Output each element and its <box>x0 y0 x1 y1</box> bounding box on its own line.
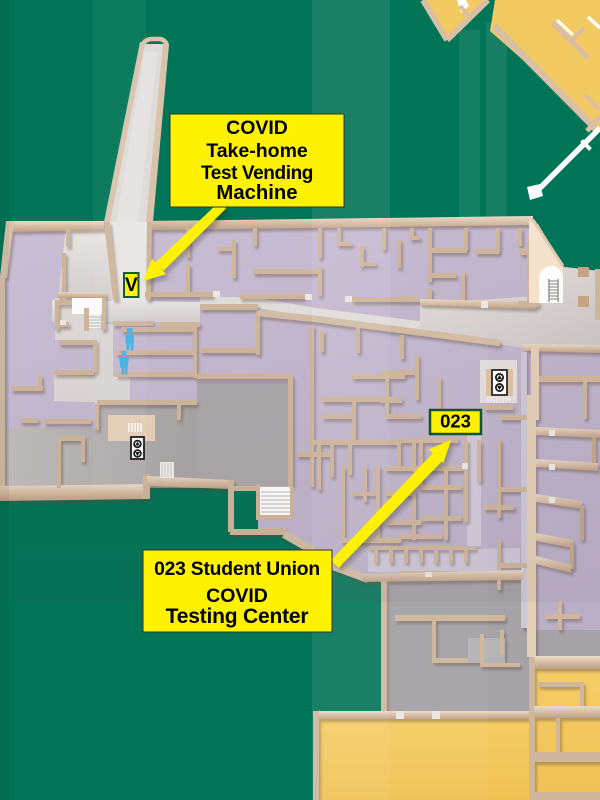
svg-text:Machine: Machine <box>216 182 297 204</box>
svg-text:023: 023 <box>440 411 471 432</box>
svg-text:023 Student Union: 023 Student Union <box>154 559 320 580</box>
svg-text:Take-home: Take-home <box>206 140 308 162</box>
svg-text:Testing Center: Testing Center <box>166 605 309 628</box>
svg-text:COVID: COVID <box>226 117 288 139</box>
svg-text:COVID: COVID <box>206 585 268 607</box>
svg-text:V: V <box>125 275 138 296</box>
svg-text:Test Vending: Test Vending <box>201 163 313 184</box>
